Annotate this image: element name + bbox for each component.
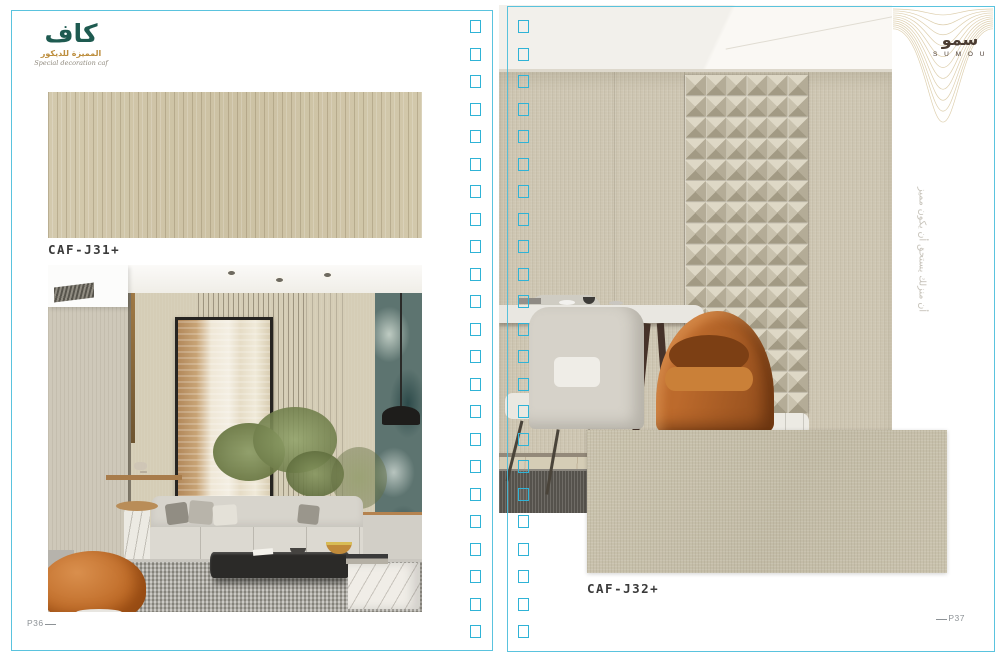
binding-hole (518, 103, 529, 116)
gray-chair-cushion (554, 357, 600, 387)
binding-hole (518, 598, 529, 611)
marble-side-table (124, 507, 150, 567)
page-number-dash (936, 619, 947, 620)
kaf-brand-logo: كاف المميزة للديكور Special decoration c… (28, 20, 114, 67)
binding-hole (470, 268, 481, 281)
binding-hole (518, 130, 529, 143)
binding-hole (518, 20, 529, 33)
binding-hole (470, 598, 481, 611)
wall-left-panel (48, 293, 131, 583)
binding-hole (470, 405, 481, 418)
binding-hole (470, 350, 481, 363)
binding-hole (470, 378, 481, 391)
bronze-trim (131, 293, 135, 443)
binding-hole (470, 460, 481, 473)
binding-hole (470, 213, 481, 226)
binding-holes-right-column (518, 20, 530, 638)
kaf-logo-subtitle-arabic: المميزة للديكور (28, 49, 114, 58)
binding-hole (518, 323, 529, 336)
cognac-chair-seat (665, 367, 753, 391)
binding-hole (470, 240, 481, 253)
chair-base (76, 609, 122, 612)
sofa-pillow (165, 502, 190, 526)
pendant-lamp (382, 406, 420, 425)
vertical-arabic-tagline: أن منزلك يستحق أن يكون مميز (917, 150, 928, 350)
sofa-pillow (297, 504, 320, 525)
marble-block-table (348, 563, 420, 609)
binding-hole (470, 323, 481, 336)
binding-hole (518, 295, 529, 308)
page-number-dash (45, 624, 56, 625)
wave-contour-ornament (893, 6, 993, 130)
swatch-label-caf-j31: CAF-J31+ (48, 242, 120, 257)
kaf-logo-arabic: كاف (28, 20, 114, 48)
ceiling-light (228, 271, 235, 275)
binding-hole (518, 350, 529, 363)
cornice-shadow (499, 69, 892, 72)
sofa-pillow (188, 500, 214, 525)
console-shelf (106, 475, 182, 480)
binding-hole (518, 460, 529, 473)
kaf-logo-subtitle-english: Special decoration caf (28, 59, 114, 67)
binding-hole (470, 75, 481, 88)
page-number-right-text: P37 (948, 613, 965, 623)
binding-hole (470, 543, 481, 556)
books-stack (346, 554, 388, 564)
sumou-logo-arabic: سمو (928, 30, 992, 49)
page-number-left: P36 (27, 618, 57, 628)
side-table-top (116, 501, 158, 511)
ceiling-light (276, 278, 283, 282)
swatch-label-caf-j32: CAF-J32+ (587, 581, 659, 596)
binding-hole (518, 268, 529, 281)
wallpaper-swatch-caf-j31 (48, 92, 422, 238)
binding-hole (470, 130, 481, 143)
deer-figurine (134, 462, 147, 470)
binding-hole (470, 20, 481, 33)
binding-hole (518, 213, 529, 226)
binding-hole (470, 625, 481, 638)
ceiling (499, 5, 892, 71)
plate (559, 300, 575, 305)
wall-seam (808, 71, 809, 457)
wallpaper-swatch-caf-j32 (587, 430, 947, 573)
binding-hole (470, 433, 481, 446)
binding-hole (470, 295, 481, 308)
living-room-photo (48, 265, 422, 612)
binding-hole (518, 240, 529, 253)
binding-hole (470, 103, 481, 116)
binding-hole (518, 543, 529, 556)
binding-hole (518, 185, 529, 198)
binding-hole (518, 625, 529, 638)
ceiling-light (324, 273, 331, 277)
page-number-left-text: P36 (27, 618, 44, 628)
binding-hole (470, 515, 481, 528)
binding-hole (518, 405, 529, 418)
binding-hole (518, 433, 529, 446)
binding-hole (518, 570, 529, 583)
sofa-pillow (212, 504, 237, 526)
pendant-lamp-stem (400, 293, 402, 407)
page-number-right: P37 (895, 613, 965, 623)
binding-hole (518, 488, 529, 501)
binding-hole (470, 488, 481, 501)
dish (609, 301, 623, 305)
binding-hole (470, 185, 481, 198)
binding-hole (518, 158, 529, 171)
sumou-logo-english: S U M O U (928, 51, 992, 58)
coffee-table (210, 552, 350, 578)
binding-hole (470, 158, 481, 171)
binding-hole (518, 48, 529, 61)
catalog-spread: كاف المميزة للديكور Special decoration c… (0, 0, 1000, 658)
binding-hole (518, 75, 529, 88)
binding-hole (518, 515, 529, 528)
binding-holes-left-column (470, 20, 482, 638)
binding-hole (470, 48, 481, 61)
binding-hole (518, 378, 529, 391)
sumou-brand-logo: سمو S U M O U (928, 30, 992, 58)
binding-hole (470, 570, 481, 583)
